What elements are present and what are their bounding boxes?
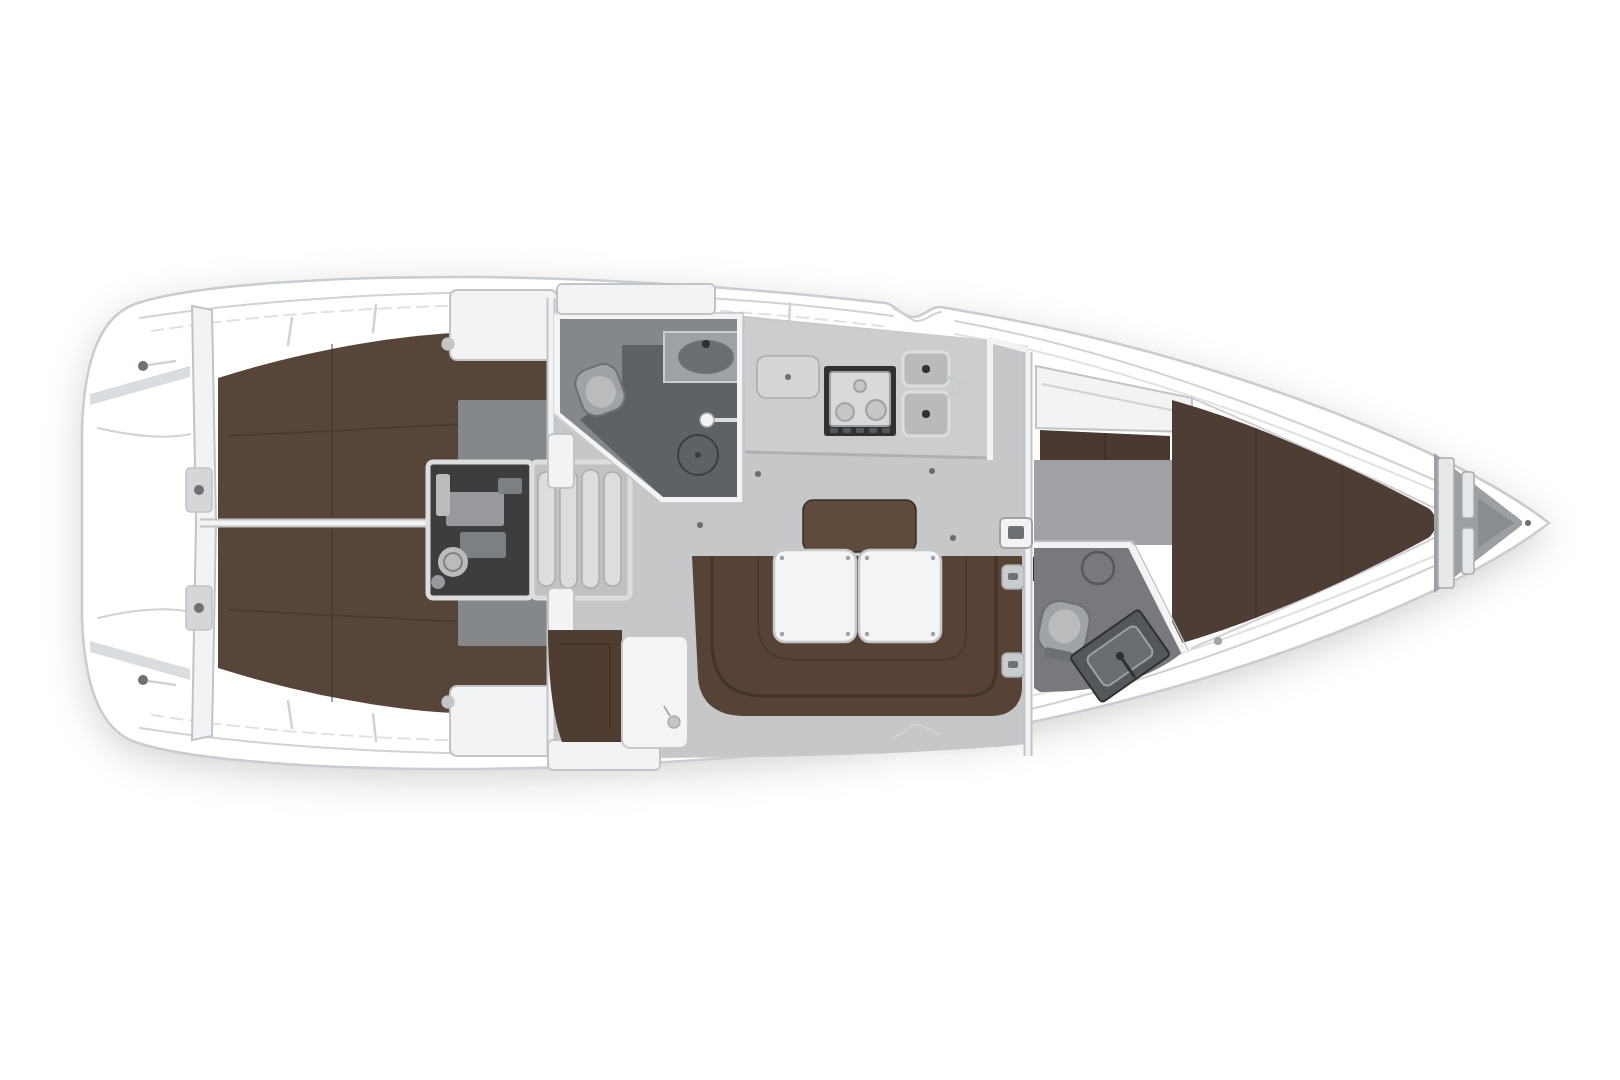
- aft-cabinet-port: [450, 686, 557, 756]
- stove: [824, 366, 896, 436]
- sink-inboard-drain: [922, 410, 930, 418]
- settee-backrest: [803, 500, 916, 552]
- anchor-locker: [1434, 453, 1531, 593]
- engine-tank: [436, 474, 450, 516]
- settee-hinge-top-slot: [1008, 573, 1018, 580]
- chart-table-area: [548, 630, 688, 748]
- engine-block: [446, 492, 504, 526]
- anchor-bulkhead-main: [1438, 458, 1454, 588]
- shower-drain-dot: [695, 452, 701, 458]
- aft-cabinet-starboard: [450, 290, 557, 360]
- chart-table-knob: [668, 716, 680, 728]
- shower-wand-head: [700, 413, 714, 427]
- stern-cleat-top: [138, 361, 148, 371]
- aft-head-faucet: [702, 340, 710, 348]
- yacht-floorplan-figure: [0, 0, 1620, 1080]
- galley-locker-knob: [785, 374, 791, 380]
- fwd-cabin-floor: [1034, 460, 1172, 545]
- salon-table-left: [774, 550, 856, 642]
- burner-top: [854, 380, 866, 392]
- stern-cleat-bottom: [138, 675, 148, 685]
- fwd-door-handle-plate: [1008, 526, 1024, 539]
- fwd-cabin-hook: [1214, 637, 1222, 645]
- floorplan-svg: [0, 0, 1620, 1080]
- aft-bulkhead-latch-top-knob: [194, 485, 204, 495]
- salon-table-right: [859, 550, 941, 642]
- chart-table-top: [622, 636, 688, 748]
- sink-outboard-drain: [922, 365, 930, 373]
- anchor-bulkhead-upper: [1462, 472, 1474, 518]
- burner-left: [836, 403, 854, 421]
- engine-filter: [431, 575, 445, 589]
- aft-bulkhead-latch-bottom-knob: [194, 603, 204, 613]
- engine-manifold: [460, 532, 506, 558]
- engine-box-part: [498, 478, 522, 494]
- settee-hinge-bottom-slot: [1008, 661, 1018, 668]
- companionway-post-top: [548, 434, 574, 488]
- anchor-bulkhead-lower: [1462, 528, 1474, 574]
- bow-fitting: [1525, 520, 1531, 526]
- aft-cabinet-starboard-knob: [442, 338, 454, 350]
- aft-cabinet-port-knob: [442, 696, 454, 708]
- burner-right: [866, 400, 886, 420]
- engine-pulley: [438, 547, 468, 577]
- aft-head-top-cabinet: [557, 284, 715, 314]
